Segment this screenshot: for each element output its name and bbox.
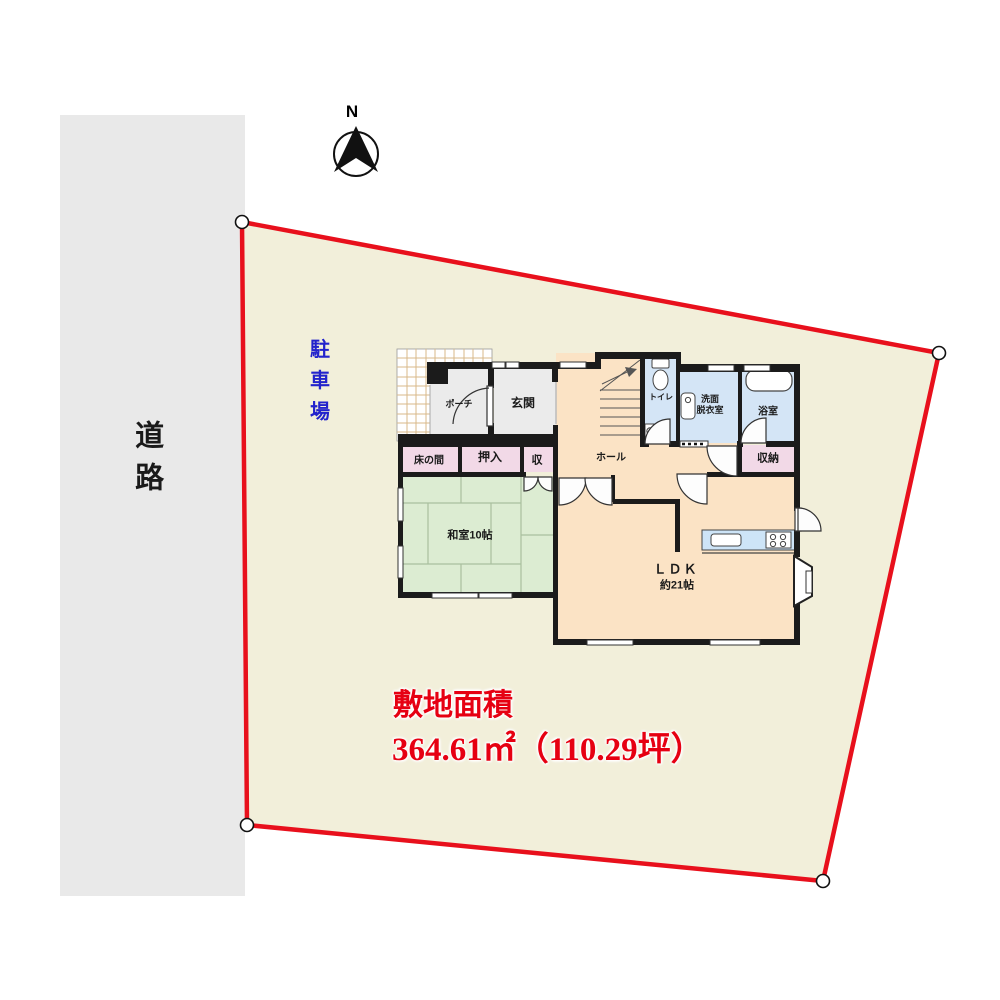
room-label-storage-right: 収納: [757, 453, 779, 466]
room-label-toilet: トイレ: [649, 392, 673, 401]
kitchen-counter: [702, 530, 798, 553]
room-label-washitsu: 和室10帖: [447, 530, 492, 543]
bathtub-fixture: [746, 370, 792, 391]
area-title: 敷地面積: [393, 680, 513, 724]
site-plan-canvas: N 道路 駐車場 ポーチ 玄関 トイレ 洗面 脱衣室 浴室 収納 床の間 押入 …: [0, 0, 1000, 1000]
room-label-storage-small: 収: [532, 455, 543, 468]
parking-label: 駐車場: [306, 339, 329, 432]
compass-n-label: N: [346, 102, 358, 122]
road-area: [60, 115, 245, 896]
washbasin-fixture: [681, 393, 695, 419]
porch-door-leaf: [487, 386, 493, 426]
road-label: 道路: [129, 420, 162, 504]
room-label-hall: ホール: [596, 452, 626, 464]
area-value: 364.61㎡（110.29坪）: [392, 722, 704, 770]
kitchen-sink: [711, 534, 741, 546]
room-label-porch: ポーチ: [445, 399, 472, 409]
room-label-oshiire: 押入: [478, 451, 502, 465]
sliding-door: [680, 441, 708, 447]
north-arrow-icon: [334, 126, 378, 176]
room-label-ldk-size: 約21帖: [660, 580, 694, 593]
room-label-tokonoma: 床の間: [414, 455, 444, 467]
room-label-washroom-2: 脱衣室: [696, 405, 723, 415]
room-label-ldk: ＬＤＫ: [653, 563, 698, 578]
stove-icon: [766, 532, 791, 548]
room-label-washroom-1: 洗面: [701, 394, 719, 404]
room-label-bathroom: 浴室: [758, 406, 778, 418]
room-label-entrance: 玄関: [511, 397, 535, 411]
